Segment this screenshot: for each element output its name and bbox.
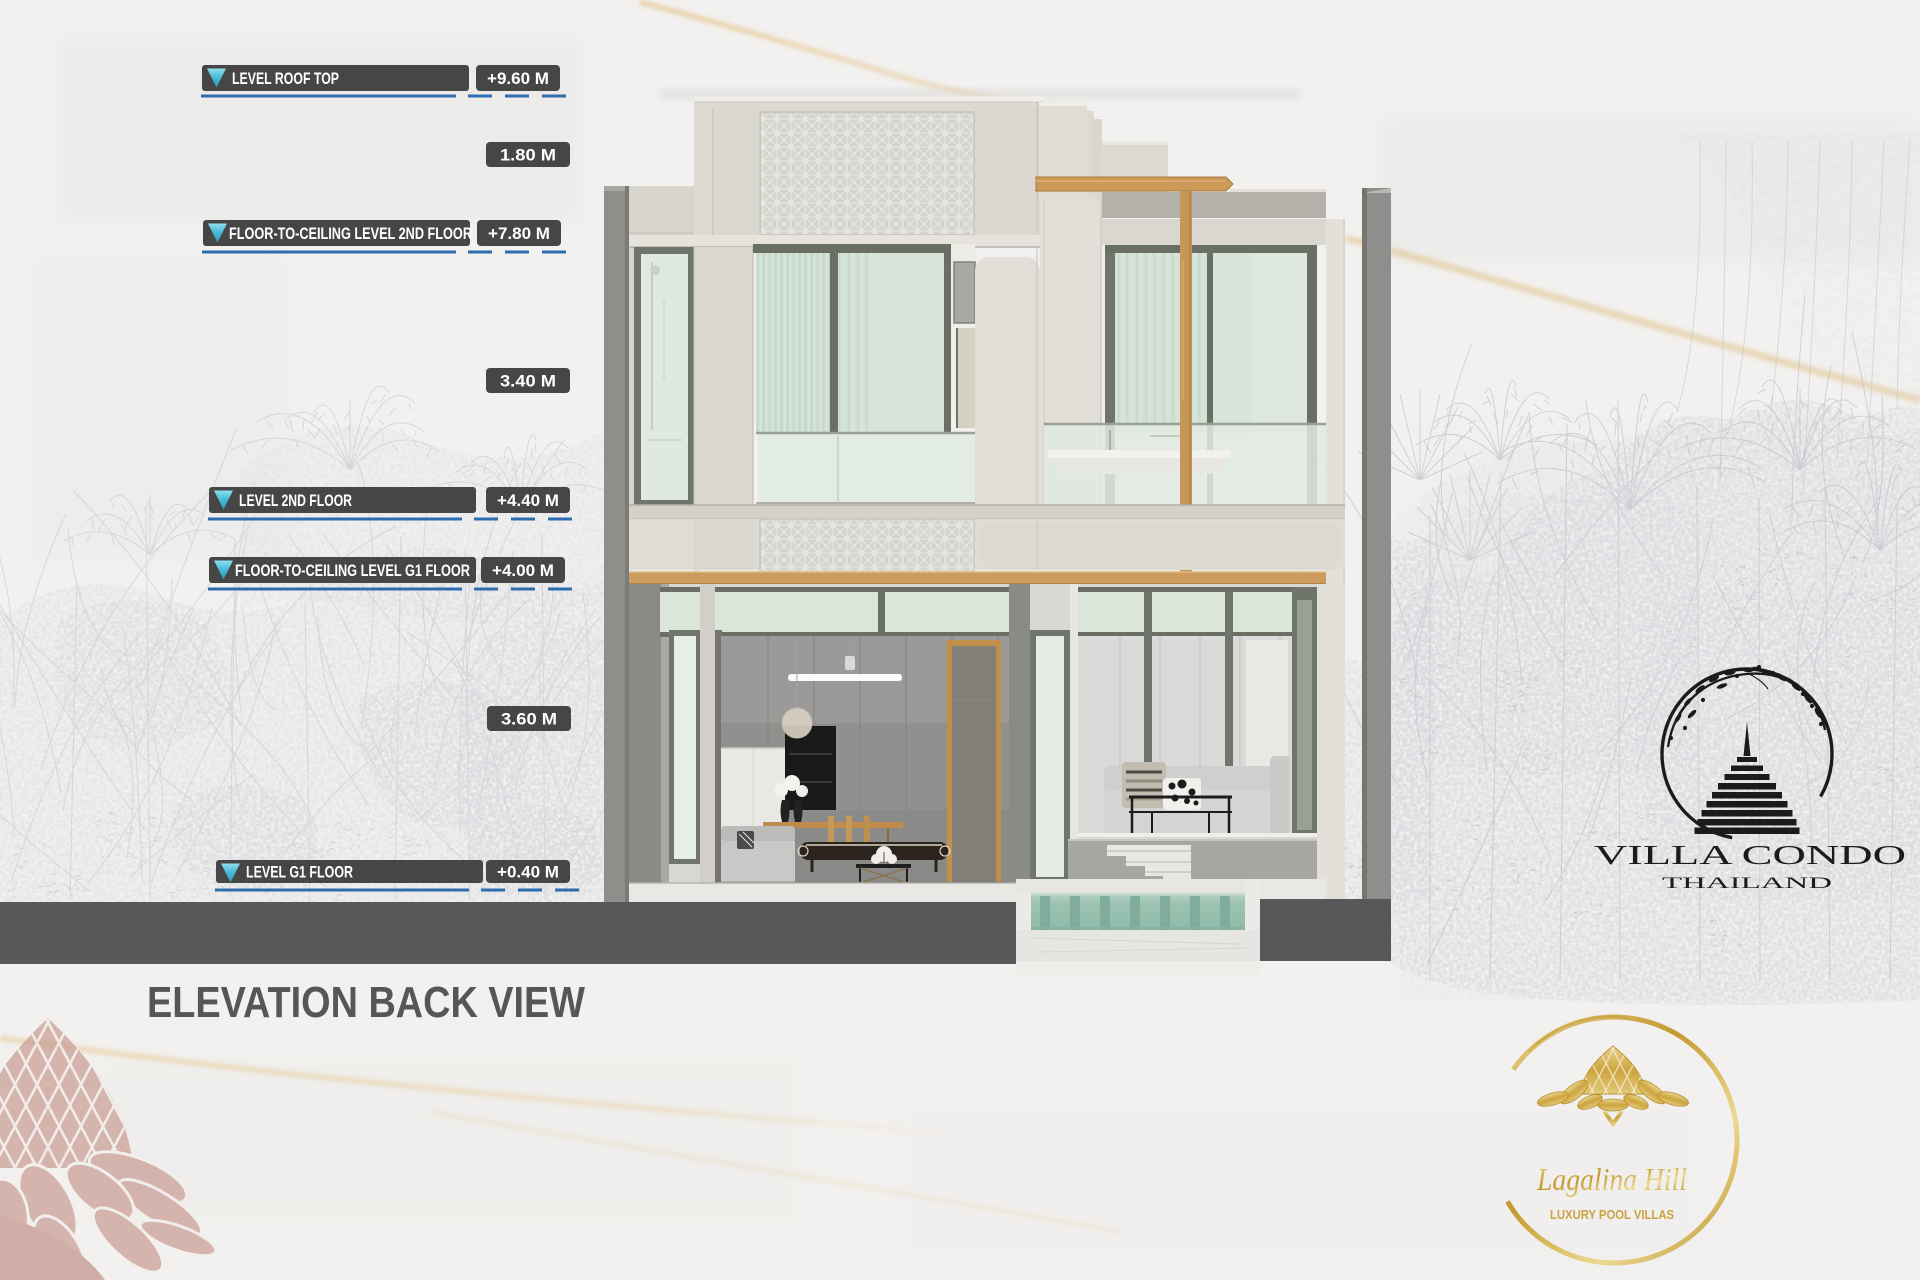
svg-text:FLOOR-TO-CEILING LEVEL 2ND FLO: FLOOR-TO-CEILING LEVEL 2ND FLOOR [229, 225, 472, 243]
svg-text:LEVEL G1 FLOOR: LEVEL G1 FLOOR [246, 864, 353, 882]
svg-text:+4.00 M: +4.00 M [492, 562, 554, 580]
svg-text:+7.80 M: +7.80 M [488, 225, 550, 243]
svg-text:LEVEL 2ND FLOOR: LEVEL 2ND FLOOR [239, 492, 352, 510]
svg-text:THAILAND: THAILAND [1662, 875, 1832, 892]
svg-text:Lagalina Hill: Lagalina Hill [1536, 1161, 1687, 1197]
svg-text:VILLA CONDO: VILLA CONDO [1594, 840, 1906, 870]
svg-text:1.80 M: 1.80 M [500, 147, 556, 165]
svg-text:+4.40 M: +4.40 M [497, 492, 559, 510]
svg-text:3.60 M: 3.60 M [501, 711, 557, 729]
svg-text:FLOOR-TO-CEILING LEVEL G1 FLOO: FLOOR-TO-CEILING LEVEL G1 FLOOR [235, 562, 470, 580]
svg-text:LUXURY POOL VILLAS: LUXURY POOL VILLAS [1550, 1207, 1674, 1222]
svg-text:+9.60 M: +9.60 M [487, 70, 549, 88]
svg-text:LEVEL ROOF TOP: LEVEL ROOF TOP [232, 70, 339, 88]
svg-text:ELEVATION BACK VIEW: ELEVATION BACK VIEW [147, 978, 585, 1027]
svg-text:3.40 M: 3.40 M [500, 373, 556, 391]
svg-text:+0.40 M: +0.40 M [497, 864, 559, 882]
